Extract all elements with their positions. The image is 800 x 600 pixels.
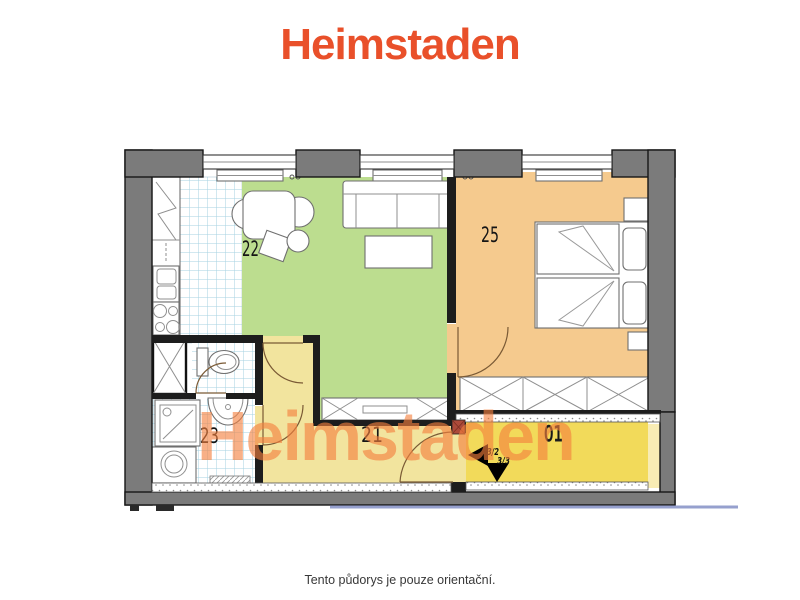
- shower-cabin: [153, 339, 186, 394]
- room-number-25: 25: [481, 223, 499, 247]
- room-number-01: 01: [544, 422, 563, 446]
- tv-sideboard: [322, 398, 452, 420]
- kitchen-sink: [153, 266, 179, 302]
- floor-sign-down: 3/3: [497, 456, 510, 467]
- radiators: [217, 170, 602, 181]
- double-bed: [535, 222, 648, 328]
- room-number-21: 21: [361, 423, 383, 447]
- doorway-living-hall: [263, 336, 303, 343]
- page: Heimstaden: [0, 0, 800, 600]
- room-number-23: 23: [200, 424, 219, 448]
- chair-icon: [287, 230, 309, 252]
- shower-tray: [155, 400, 200, 446]
- windows: [203, 155, 612, 169]
- coffee-table: [365, 236, 432, 268]
- doorway-bedroom: [447, 324, 456, 373]
- doorway-entrance: [451, 433, 466, 482]
- sofa: [343, 181, 452, 228]
- kitchen-counter: [152, 177, 180, 335]
- room-number-22: 22: [242, 237, 259, 261]
- toilet: [197, 348, 239, 376]
- stove-burners: [153, 302, 180, 335]
- bedroom-wardrobe: [460, 377, 650, 412]
- washing-machine: [152, 447, 196, 483]
- pillow: [623, 228, 646, 270]
- doorway-bathroom: [255, 406, 263, 445]
- bedside-shelf: [628, 332, 648, 350]
- pillow: [623, 282, 646, 324]
- disclaimer-text: Tento půdorys je pouze orientační.: [0, 573, 800, 587]
- floor-plan: 3/2 3/3 22 25 23 21 01: [0, 0, 800, 600]
- nightstand: [624, 198, 648, 221]
